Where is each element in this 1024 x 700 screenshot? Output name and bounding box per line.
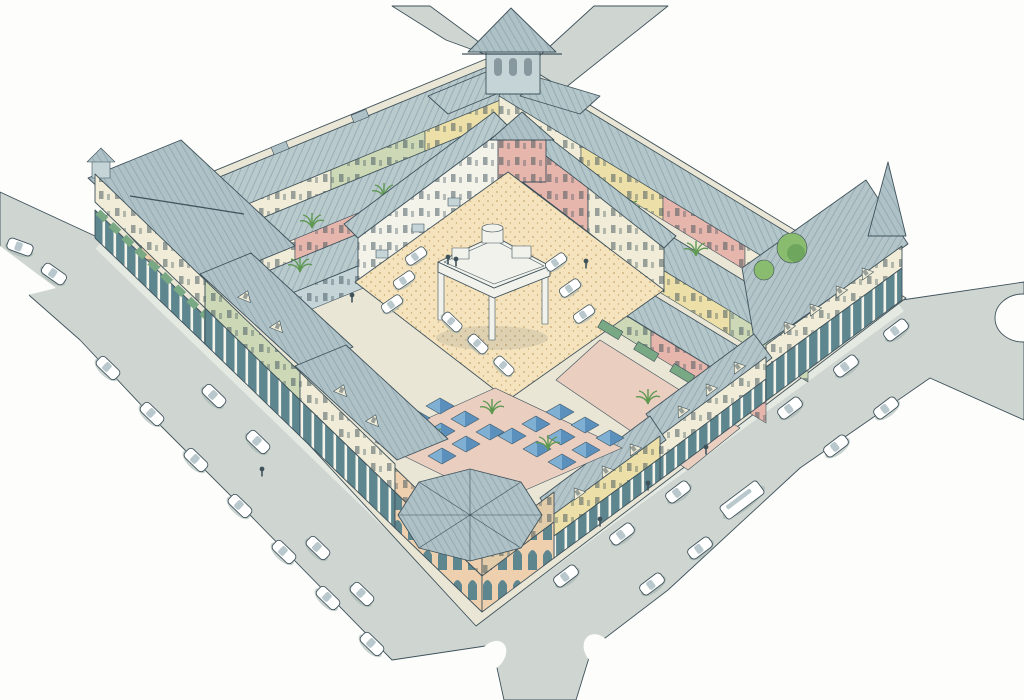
balcony: [412, 224, 424, 232]
illustration-canvas: Aerial watercolor rendering of a mixed-u…: [0, 0, 1024, 700]
balcony: [376, 250, 388, 258]
water-tank-top: [482, 224, 503, 232]
rooftop-box: [512, 246, 531, 258]
balcony: [448, 198, 460, 206]
tower-arch-window: [509, 58, 517, 76]
shade-tree: [754, 260, 774, 280]
tower-pyramid-roof: [468, 8, 556, 52]
lantern-roof: [87, 148, 115, 162]
illustration-stage: Aerial watercolor rendering of a mixed-u…: [0, 0, 1024, 700]
shade-tree-shadow: [787, 244, 805, 262]
tower-arch-window: [524, 58, 532, 76]
tower-arch-window: [494, 58, 502, 76]
